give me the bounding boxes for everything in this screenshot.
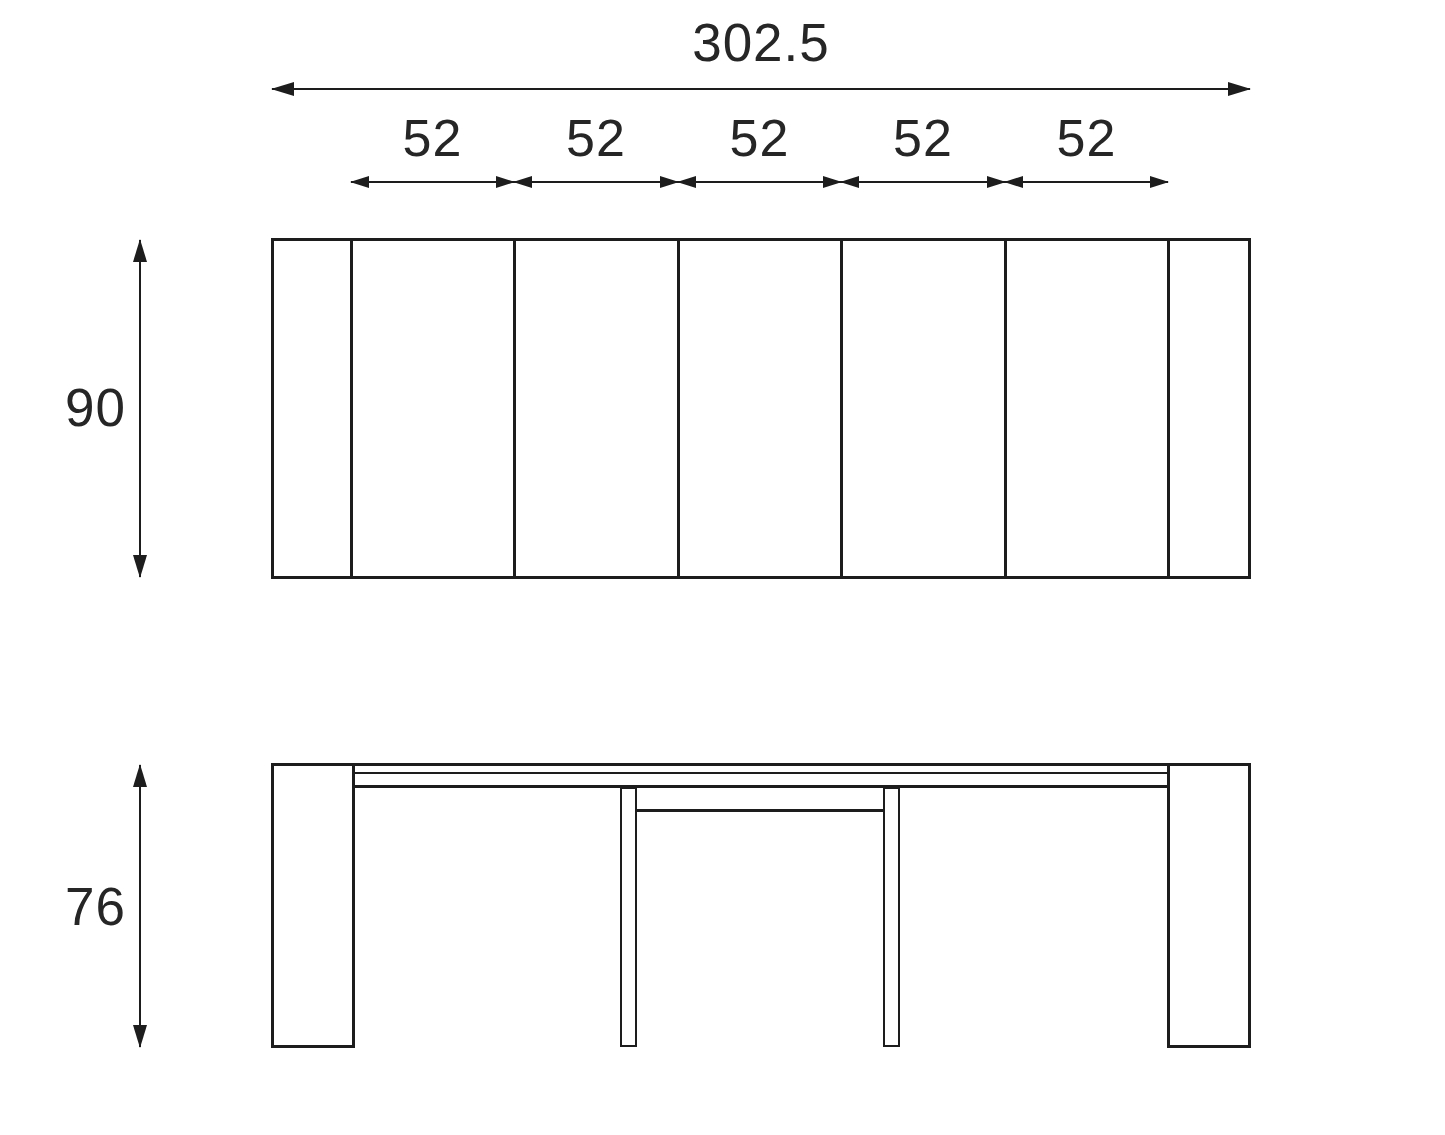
left-leg: [271, 763, 355, 1048]
arrowhead-down-icon: [133, 1025, 147, 1048]
arrowhead-down-icon: [133, 555, 147, 578]
overall-width-label: 302.5: [272, 16, 1250, 69]
depth-dimension-line: [139, 240, 141, 577]
section-width-label: 52: [1005, 112, 1168, 164]
panel-divider: [350, 240, 353, 577]
tabletop-top-edge-line: [271, 763, 1251, 766]
arrowhead-right-icon: [1228, 82, 1251, 96]
section-width-label: 52: [351, 112, 514, 164]
right-leg: [1167, 763, 1251, 1048]
stretcher-rail-line: [637, 809, 883, 812]
height-label: 76: [30, 880, 126, 933]
section-dimension-line: [1005, 181, 1168, 183]
section-width-label: 52: [678, 112, 841, 164]
top-view-outline: [271, 238, 1251, 579]
arrowhead-left-icon: [513, 176, 532, 188]
section-dimension-line: [841, 181, 1005, 183]
panel-divider: [1167, 240, 1170, 577]
arrowhead-left-icon: [350, 176, 369, 188]
center-leg-left: [620, 787, 637, 1047]
arrowhead-left-icon: [840, 176, 859, 188]
arrowhead-left-icon: [677, 176, 696, 188]
section-width-label: 52: [841, 112, 1005, 164]
panel-divider: [1004, 240, 1007, 577]
height-dimension-line: [139, 765, 141, 1047]
technical-drawing-canvas: 302.5 52 52 52 52 52 90 76: [0, 0, 1445, 1135]
arrowhead-up-icon: [133, 239, 147, 262]
section-dimension-line: [678, 181, 841, 183]
arrowhead-up-icon: [133, 764, 147, 787]
center-leg-right: [883, 787, 900, 1047]
section-width-label: 52: [514, 112, 678, 164]
section-dimension-line: [514, 181, 678, 183]
tabletop-bottom-edge-line: [355, 772, 1168, 774]
arrowhead-left-icon: [271, 82, 294, 96]
overall-width-dimension-line: [272, 88, 1250, 90]
panel-divider: [677, 240, 680, 577]
arrowhead-right-icon: [1150, 176, 1169, 188]
apron-line: [355, 785, 1168, 788]
arrowhead-left-icon: [1004, 176, 1023, 188]
panel-divider: [840, 240, 843, 577]
section-dimension-line: [351, 181, 514, 183]
panel-divider: [513, 240, 516, 577]
depth-label: 90: [30, 381, 126, 434]
